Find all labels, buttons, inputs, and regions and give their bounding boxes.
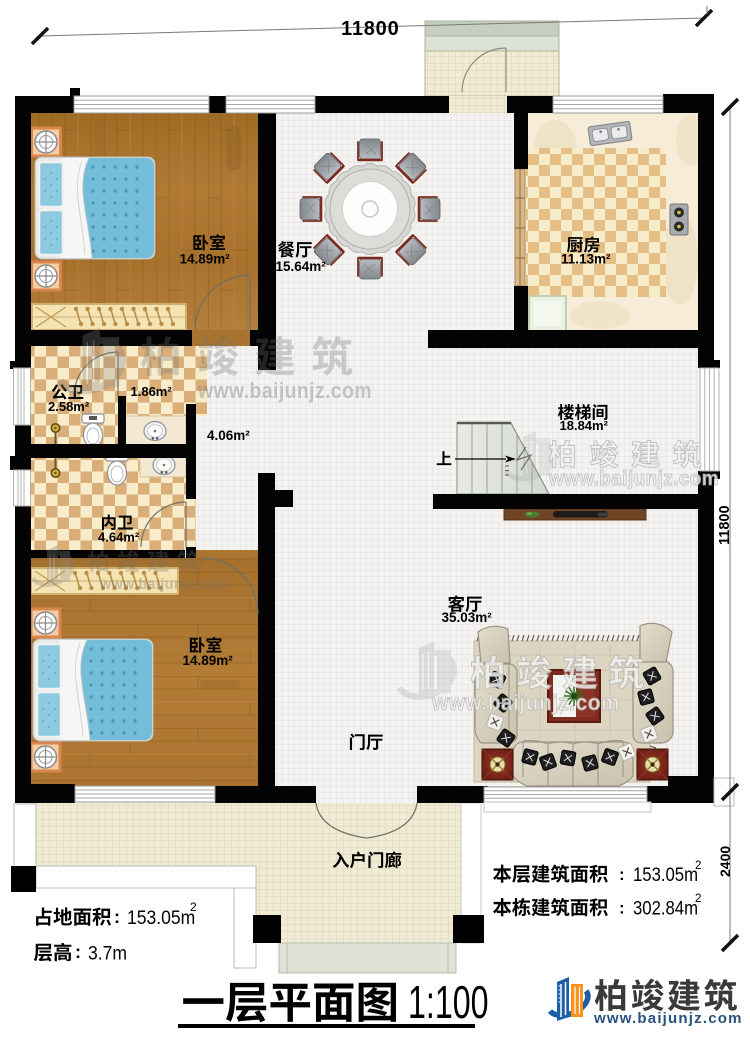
svg-text::: : (75, 942, 81, 962)
svg-text:11800: 11800 (341, 18, 400, 40)
svg-text::: : (619, 899, 625, 918)
svg-text:11800: 11800 (717, 505, 733, 545)
svg-text:302.84m: 302.84m (633, 898, 698, 919)
svg-text:1.86m²: 1.86m² (131, 384, 173, 399)
svg-text:www.baijunjz.com: www.baijunjz.com (593, 1010, 743, 1027)
svg-text:www.baijunjz.com: www.baijunjz.com (548, 468, 719, 490)
svg-text:2.58m²: 2.58m² (48, 399, 90, 414)
svg-text:3.7m: 3.7m (88, 942, 127, 964)
svg-text:2: 2 (695, 860, 701, 872)
svg-text:11.13m²: 11.13m² (561, 252, 611, 267)
svg-text:2: 2 (190, 900, 197, 914)
svg-text:2400: 2400 (717, 846, 733, 877)
svg-text::: : (114, 907, 120, 927)
svg-text:www.baijunjz.com: www.baijunjz.com (99, 576, 230, 593)
svg-text:14.89m²: 14.89m² (183, 653, 234, 668)
svg-text:153.05m: 153.05m (127, 906, 195, 928)
svg-text:www.baijunjz.com: www.baijunjz.com (431, 690, 620, 715)
svg-text:1:100: 1:100 (408, 977, 489, 1028)
svg-text:153.05m: 153.05m (633, 864, 698, 885)
svg-text:2: 2 (695, 893, 701, 905)
svg-text:www.baijunjz.com: www.baijunjz.com (197, 378, 372, 403)
svg-text:18.84m²: 18.84m² (560, 418, 609, 433)
svg-text:35.03m²: 35.03m² (442, 610, 493, 625)
svg-text:4.06m²: 4.06m² (207, 428, 250, 443)
svg-text:14.89m²: 14.89m² (180, 252, 231, 267)
svg-text::: : (619, 865, 625, 884)
svg-text:15.64m²: 15.64m² (276, 259, 327, 274)
svg-text:4.64m²: 4.64m² (98, 530, 140, 545)
